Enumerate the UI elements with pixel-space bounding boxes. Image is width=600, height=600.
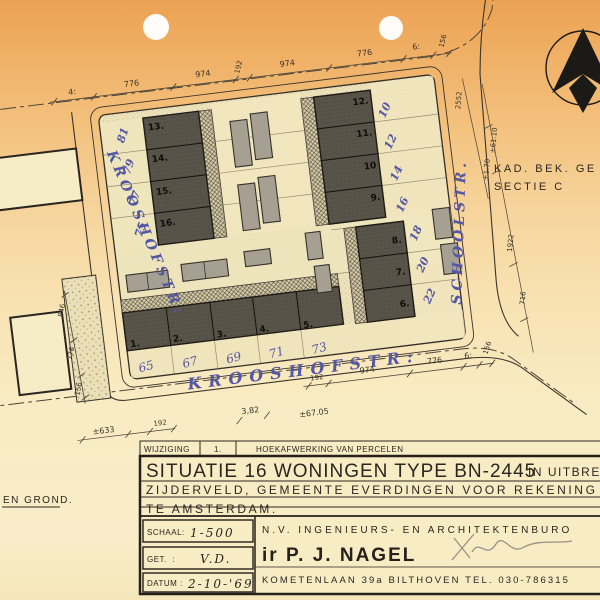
drawing-location: TE AMSTERDAM. — [146, 502, 278, 516]
plot-number: 9. — [370, 193, 381, 204]
dim-label: 1922 — [506, 234, 516, 252]
plot-number: 14. — [151, 153, 168, 165]
architect-name: ir P. J. NAGEL — [262, 545, 416, 566]
drawn-by-label: GET. : — [147, 555, 175, 564]
plot-number: 7. — [395, 267, 406, 278]
drawing-title-suffix: IN UITBREIDI — [528, 465, 600, 479]
punch-hole — [143, 14, 169, 40]
site-plan-drawing: 13. 14. 15. 16. 12. 11. 10 9. 1. 2. 3. 4… — [0, 0, 600, 600]
plot-number: 1. — [130, 339, 141, 350]
dim-label: 776 — [426, 355, 442, 366]
plot-number: 3. — [216, 330, 227, 341]
drawing-subtitle: ZIJDERVELD, GEMEENTE EVERDINGEN VOOR REK… — [146, 483, 600, 497]
firm-address: KOMETENLAAN 39a BILTHOVEN TEL. 030-78631… — [262, 575, 570, 586]
plot-number: 12. — [352, 97, 369, 109]
plot-number: 11. — [356, 128, 373, 140]
date-value: 2-10-'69 — [187, 577, 254, 591]
dim-label: 974 — [359, 365, 375, 376]
plot-number: 16. — [159, 218, 176, 230]
plot-number: 4. — [259, 324, 270, 335]
dim-label: 776 — [123, 78, 139, 89]
title-block: WIJZIGING 1. HOEKAFWERKING VAN PERCELEN … — [140, 441, 600, 594]
revision-number: 1. — [214, 445, 222, 454]
scanned-site-plan-sheet: 13. 14. 15. 16. 12. 11. 10 9. 1. 2. 3. 4… — [0, 0, 600, 600]
dim-label: 4: — [68, 87, 77, 97]
cadastral-line-1: KAD. BEK. GE — [494, 163, 597, 175]
plot-number: 5. — [303, 320, 314, 331]
revision-note: HOEKAFWERKING VAN PERCELEN — [256, 445, 404, 454]
plot-number: 15. — [155, 186, 172, 198]
dim-label: 716 — [518, 291, 527, 306]
cadastral-line-2: SECTIE C — [494, 181, 565, 193]
plot-number: 6. — [399, 299, 410, 310]
drawing-title: SITUATIE 16 WONINGEN TYPE BN-2445 — [146, 461, 536, 482]
drawn-by-value: V.D. — [200, 552, 231, 566]
dim-label: 192 — [310, 373, 324, 383]
revision-row: WIJZIGING 1. HOEKAFWERKING VAN PERCELEN — [140, 441, 600, 456]
dim-label: 192 — [153, 418, 167, 428]
plot-number: 2. — [173, 334, 184, 345]
dim-label: 974 — [279, 58, 295, 69]
dim-label: 6: — [464, 351, 473, 361]
firm-name: N.V. INGENIEURS- EN ARCHITEKTENBURO — [262, 525, 572, 536]
date-label: DATUM : — [147, 579, 183, 588]
scale-label: SCHAAL: — [147, 528, 185, 537]
scale-value: 1-500 — [190, 526, 235, 540]
revision-label: WIJZIGING — [144, 445, 190, 454]
dim-label: 6: — [412, 42, 421, 52]
ground-note: EN GROND. — [2, 495, 73, 507]
plot-number: 13. — [148, 122, 165, 134]
ground-note-text: EN GROND. — [3, 495, 73, 506]
plot-number: 10 — [363, 161, 377, 172]
dim-label: 974 — [195, 69, 211, 80]
plot-number: 8. — [391, 236, 402, 247]
dim-label: 776 — [356, 48, 372, 59]
punch-hole — [379, 16, 403, 40]
dim-label: 2552 — [454, 91, 464, 109]
